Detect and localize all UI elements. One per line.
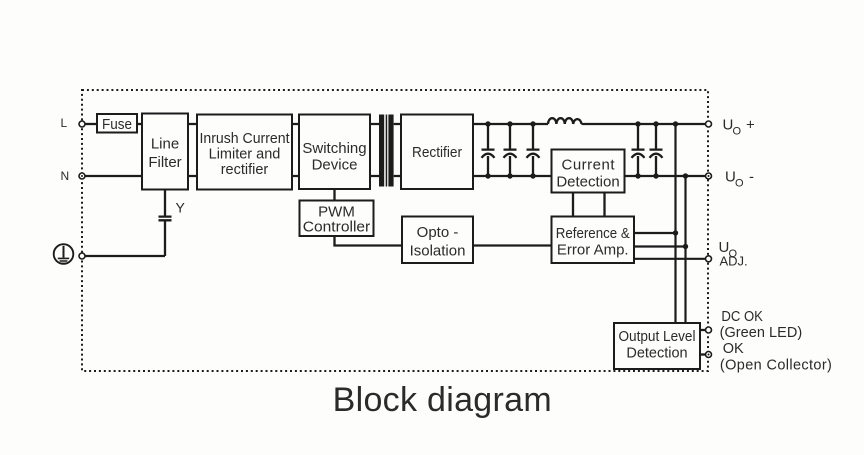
- svg-text:Current: Current: [562, 157, 616, 174]
- svg-text:Output Level: Output Level: [619, 329, 696, 345]
- svg-text:Limiter and: Limiter and: [209, 147, 281, 163]
- svg-text:Filter: Filter: [148, 154, 181, 171]
- svg-text:ADJ.: ADJ.: [720, 254, 748, 269]
- svg-text:OK: OK: [723, 341, 744, 357]
- svg-text:Block diagram: Block diagram: [333, 381, 552, 419]
- svg-text:Isolation: Isolation: [410, 243, 466, 260]
- svg-text:(Green LED): (Green LED): [720, 325, 803, 341]
- svg-text:Fuse: Fuse: [102, 116, 132, 133]
- svg-text:+: +: [746, 117, 755, 134]
- svg-text:Rectifier: Rectifier: [412, 144, 462, 161]
- svg-text:Inrush Current: Inrush Current: [200, 131, 290, 147]
- svg-text:O: O: [735, 178, 744, 190]
- svg-text:Error Amp.: Error Amp.: [557, 242, 629, 259]
- svg-text:-: -: [749, 169, 754, 186]
- svg-text:Device: Device: [312, 157, 358, 174]
- svg-text:Switching: Switching: [302, 140, 366, 157]
- svg-text:Y: Y: [176, 200, 186, 216]
- svg-text:N: N: [61, 169, 70, 183]
- svg-text:(Open Collector): (Open Collector): [720, 357, 832, 373]
- svg-text:DC OK: DC OK: [721, 309, 763, 325]
- svg-text:L: L: [61, 116, 68, 130]
- svg-text:Detection: Detection: [626, 346, 687, 362]
- svg-text:Opto -: Opto -: [417, 224, 459, 241]
- svg-text:O: O: [733, 126, 742, 138]
- svg-text:Detection: Detection: [556, 174, 619, 191]
- svg-text:Reference &: Reference &: [556, 225, 630, 242]
- svg-text:rectifier: rectifier: [221, 162, 269, 178]
- svg-text:Controller: Controller: [303, 219, 371, 236]
- svg-text:Line: Line: [151, 136, 179, 153]
